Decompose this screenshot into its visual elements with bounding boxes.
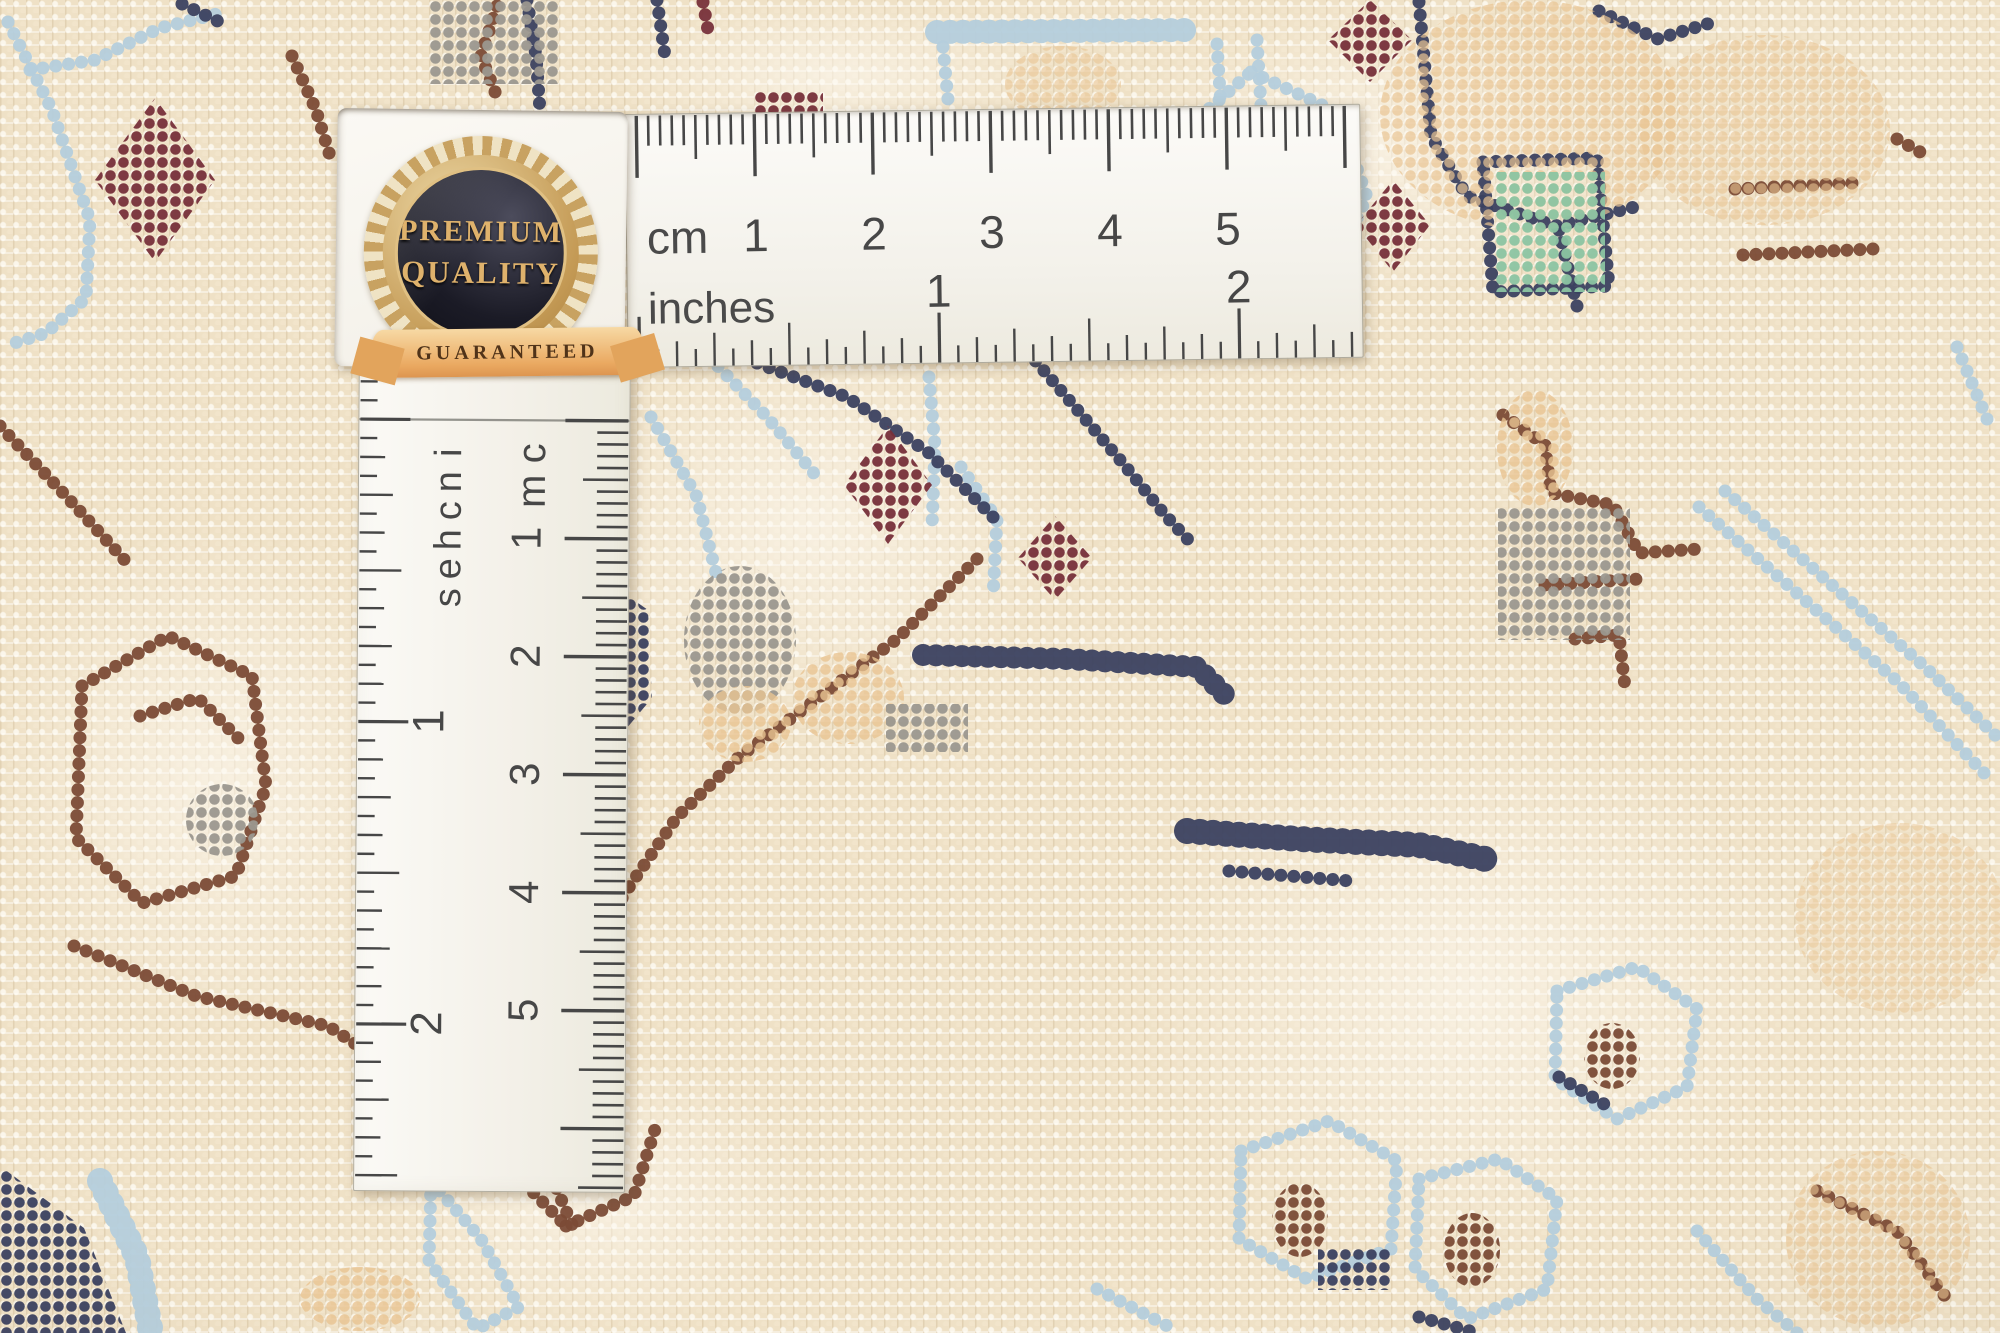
photo-rug-with-rulers: cm12345inches12 1234512 cm inches PREMIU… — [0, 0, 2000, 1333]
svg-text:2: 2 — [861, 207, 887, 259]
svg-text:3: 3 — [501, 762, 548, 786]
svg-text:5: 5 — [1215, 202, 1241, 254]
svg-text:c: c — [428, 501, 470, 520]
horizontal-inches-label: inches — [648, 283, 776, 335]
svg-text:s: s — [427, 588, 469, 607]
premium-quality-badge: PREMIUM QUALITY GUARANTEED — [334, 108, 628, 370]
svg-text:1: 1 — [503, 526, 550, 550]
svg-text:2: 2 — [402, 1011, 451, 1036]
vertical-ruler: cm12345inches12 — [353, 339, 631, 1193]
svg-text:i: i — [428, 448, 470, 457]
svg-text:3: 3 — [979, 206, 1005, 258]
svg-text:h: h — [428, 529, 470, 550]
svg-text:1: 1 — [926, 264, 952, 316]
svg-text:e: e — [427, 558, 469, 579]
badge-ribbon: GUARANTEED — [370, 327, 645, 378]
vertical-ruler-scale: cm12345inches12 — [354, 340, 630, 1192]
svg-text:5: 5 — [499, 998, 546, 1022]
svg-text:1: 1 — [404, 709, 453, 734]
svg-text:4: 4 — [1097, 204, 1123, 256]
svg-text:1: 1 — [743, 209, 769, 261]
svg-text:4: 4 — [500, 880, 547, 904]
horizontal-cm-label: cm — [647, 210, 709, 265]
svg-text:n: n — [428, 471, 470, 492]
badge-seal: PREMIUM QUALITY GUARANTEED — [362, 134, 599, 371]
svg-text:2: 2 — [502, 644, 549, 668]
horizontal-ruler: 1234512 cm inches — [624, 104, 1363, 368]
badge-text-guaranteed: GUARANTEED — [416, 340, 599, 365]
svg-text:m: m — [510, 474, 554, 508]
svg-text:2: 2 — [1226, 260, 1252, 312]
badge-text-quality: QUALITY — [401, 254, 560, 292]
badge-text-premium: PREMIUM — [399, 214, 563, 250]
svg-text:c: c — [510, 443, 554, 463]
